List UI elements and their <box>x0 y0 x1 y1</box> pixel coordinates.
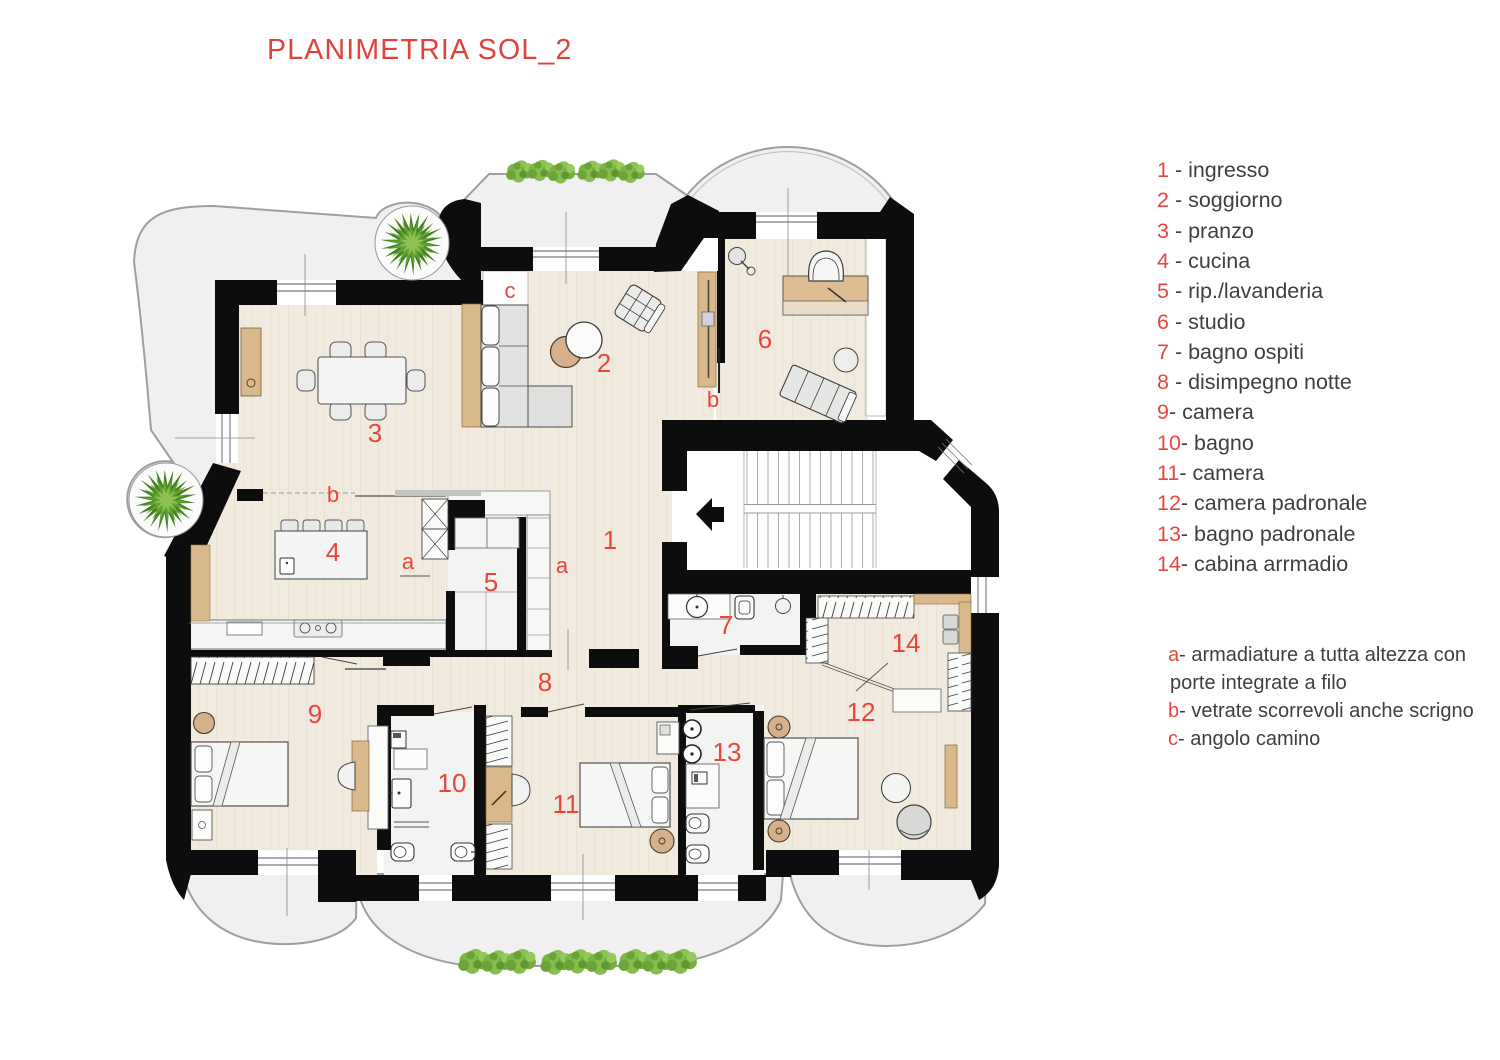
svg-text:a- armadiature a tutta altezza: a- armadiature a tutta altezza con <box>1168 644 1466 666</box>
svg-text:2 - soggiorno: 2 - soggiorno <box>1157 188 1283 212</box>
svg-text:porte integrate a filo: porte integrate a filo <box>1170 672 1347 694</box>
svg-text:11: 11 <box>553 789 580 819</box>
svg-text:8 - disimpegno notte: 8 - disimpegno notte <box>1157 370 1352 394</box>
svg-text:4: 4 <box>326 537 340 567</box>
svg-text:11- camera: 11- camera <box>1157 461 1264 485</box>
svg-text:5: 5 <box>484 567 498 597</box>
svg-text:7 - bagno ospiti: 7 - bagno ospiti <box>1157 340 1304 364</box>
svg-text:12- camera padronale: 12- camera padronale <box>1157 491 1367 515</box>
svg-text:1: 1 <box>603 525 617 555</box>
svg-text:6: 6 <box>758 324 772 354</box>
svg-text:b: b <box>327 482 339 507</box>
svg-text:b- vetrate scorrevoli anche sc: b- vetrate scorrevoli anche scrigno <box>1168 700 1474 722</box>
svg-text:c- angolo camino: c- angolo camino <box>1168 728 1320 750</box>
svg-text:14- cabina arrmadio: 14- cabina arrmadio <box>1157 552 1348 576</box>
svg-text:a: a <box>556 553 569 578</box>
svg-text:9- camera: 9- camera <box>1157 400 1254 424</box>
svg-text:2: 2 <box>597 348 611 378</box>
svg-text:3: 3 <box>368 418 382 448</box>
svg-text:5 - rip./lavanderia: 5 - rip./lavanderia <box>1157 279 1323 303</box>
svg-text:13- bagno padronale: 13- bagno padronale <box>1157 522 1355 546</box>
svg-text:PLANIMETRIA SOL_2: PLANIMETRIA SOL_2 <box>267 34 573 66</box>
svg-text:14: 14 <box>892 628 921 658</box>
svg-text:8: 8 <box>538 667 552 697</box>
svg-text:10: 10 <box>438 768 467 798</box>
svg-text:12: 12 <box>847 697 876 727</box>
svg-text:7: 7 <box>719 610 733 640</box>
svg-text:3 - pranzo: 3 - pranzo <box>1157 219 1254 243</box>
svg-text:b: b <box>707 387 719 412</box>
svg-text:a: a <box>402 549 415 574</box>
svg-text:c: c <box>505 278 516 303</box>
svg-text:13: 13 <box>713 737 742 767</box>
svg-text:1 - ingresso: 1 - ingresso <box>1157 158 1269 182</box>
svg-text:4 - cucina: 4 - cucina <box>1157 249 1250 273</box>
svg-text:10- bagno: 10- bagno <box>1157 431 1254 455</box>
svg-text:6 - studio: 6 - studio <box>1157 310 1245 334</box>
svg-text:9: 9 <box>308 699 322 729</box>
